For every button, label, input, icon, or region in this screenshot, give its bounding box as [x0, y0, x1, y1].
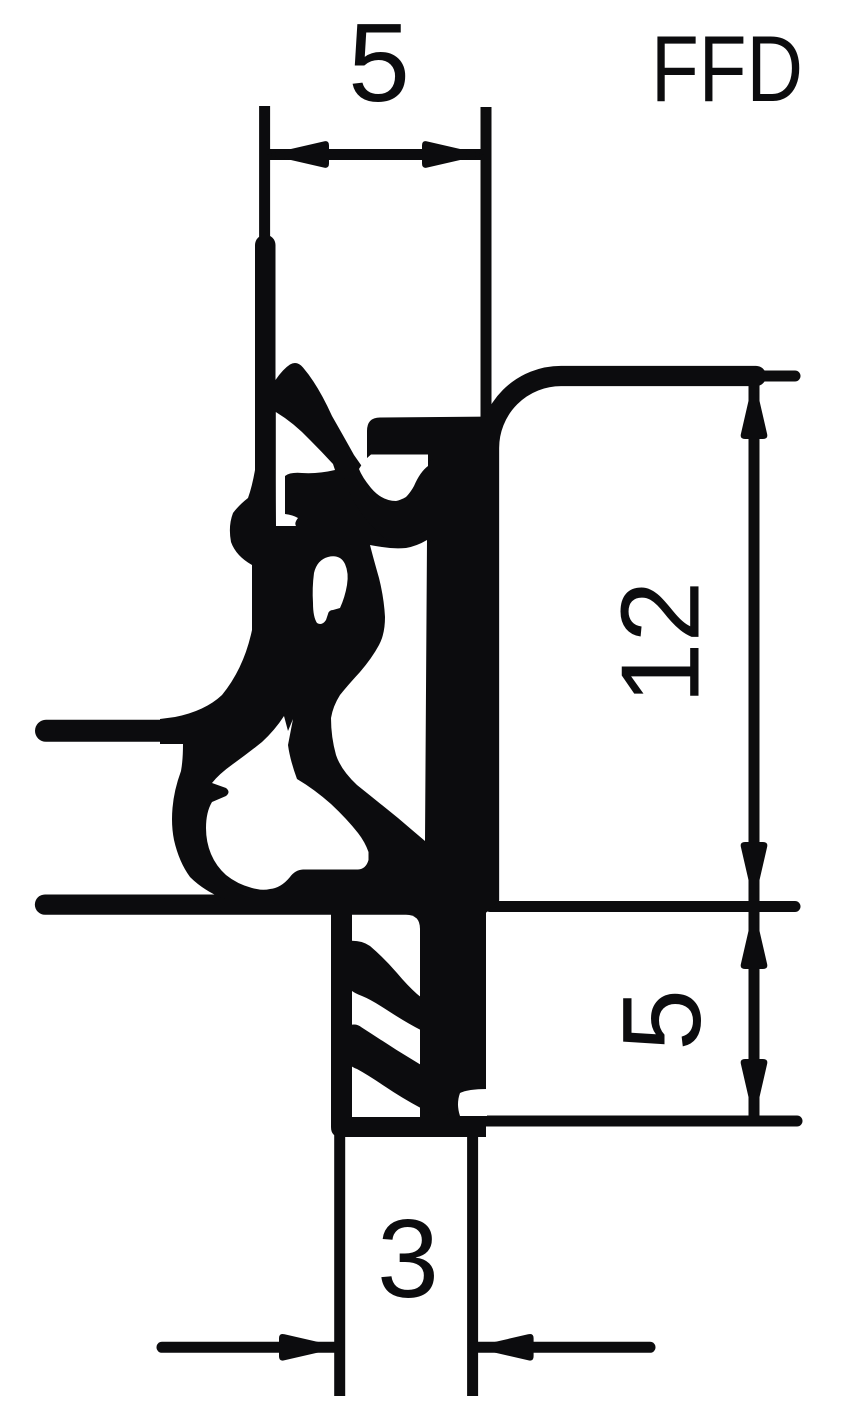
svg-text:12: 12	[599, 581, 723, 704]
svg-text:FFD: FFD	[651, 16, 803, 121]
svg-text:5: 5	[348, 1, 410, 125]
svg-text:5: 5	[600, 989, 724, 1051]
svg-text:3: 3	[377, 1197, 439, 1321]
